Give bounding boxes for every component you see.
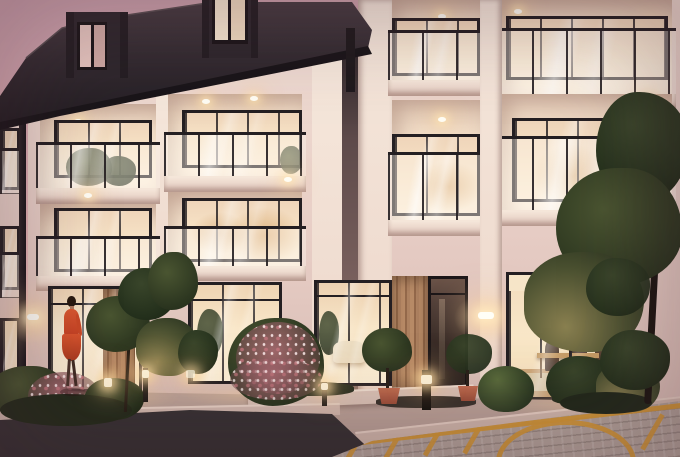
wall-sconce: [27, 314, 39, 320]
mansard-roof: [0, 0, 680, 150]
recessed-spotlight: [84, 193, 92, 198]
boxwood-ball: [478, 366, 534, 412]
dormer-left: [66, 12, 128, 78]
yellow-hatch-stripe: [640, 413, 664, 450]
woman-leg: [66, 359, 71, 386]
woman-coat-skirt: [62, 334, 81, 361]
window-transom-bar: [317, 295, 389, 297]
terracotta-pot: [378, 388, 400, 404]
tree-foliage-overlay: [586, 258, 650, 316]
bollard-light: [321, 383, 328, 390]
glass-railing: [388, 152, 484, 222]
bush-base-shadow: [0, 394, 132, 426]
window-transom-bar: [191, 299, 279, 301]
terracotta-pot: [458, 386, 478, 401]
dusk-apartment-scene: [0, 0, 680, 457]
tree-canopy: [178, 330, 218, 374]
table-leg: [540, 358, 542, 378]
woman-shadow: [60, 388, 86, 396]
door-transom-bar: [431, 293, 465, 295]
dormer-right: [202, 0, 258, 58]
flowering-bush: [230, 358, 322, 400]
door-reflection: [439, 299, 445, 379]
potted-tree-canopy: [362, 328, 412, 372]
woman-in-red-coat: [58, 296, 86, 398]
path-light: [104, 378, 112, 387]
gutter-downpipe: [346, 28, 355, 92]
bollard-light: [421, 375, 432, 384]
potted-tree-canopy: [446, 334, 492, 374]
balcony-parapet: [36, 188, 160, 204]
hedge-base-shadow: [560, 392, 652, 414]
path-light: [186, 370, 195, 378]
balcony-parapet: [388, 220, 484, 236]
woman-leg: [71, 360, 77, 386]
interior-sofa: [333, 341, 365, 363]
wall-sconce: [478, 312, 494, 319]
tree-foliage-low: [600, 330, 670, 390]
bollard-light: [142, 370, 149, 378]
tree-canopy: [148, 252, 198, 310]
recessed-spotlight: [284, 177, 292, 182]
interior-plant: [319, 311, 339, 355]
